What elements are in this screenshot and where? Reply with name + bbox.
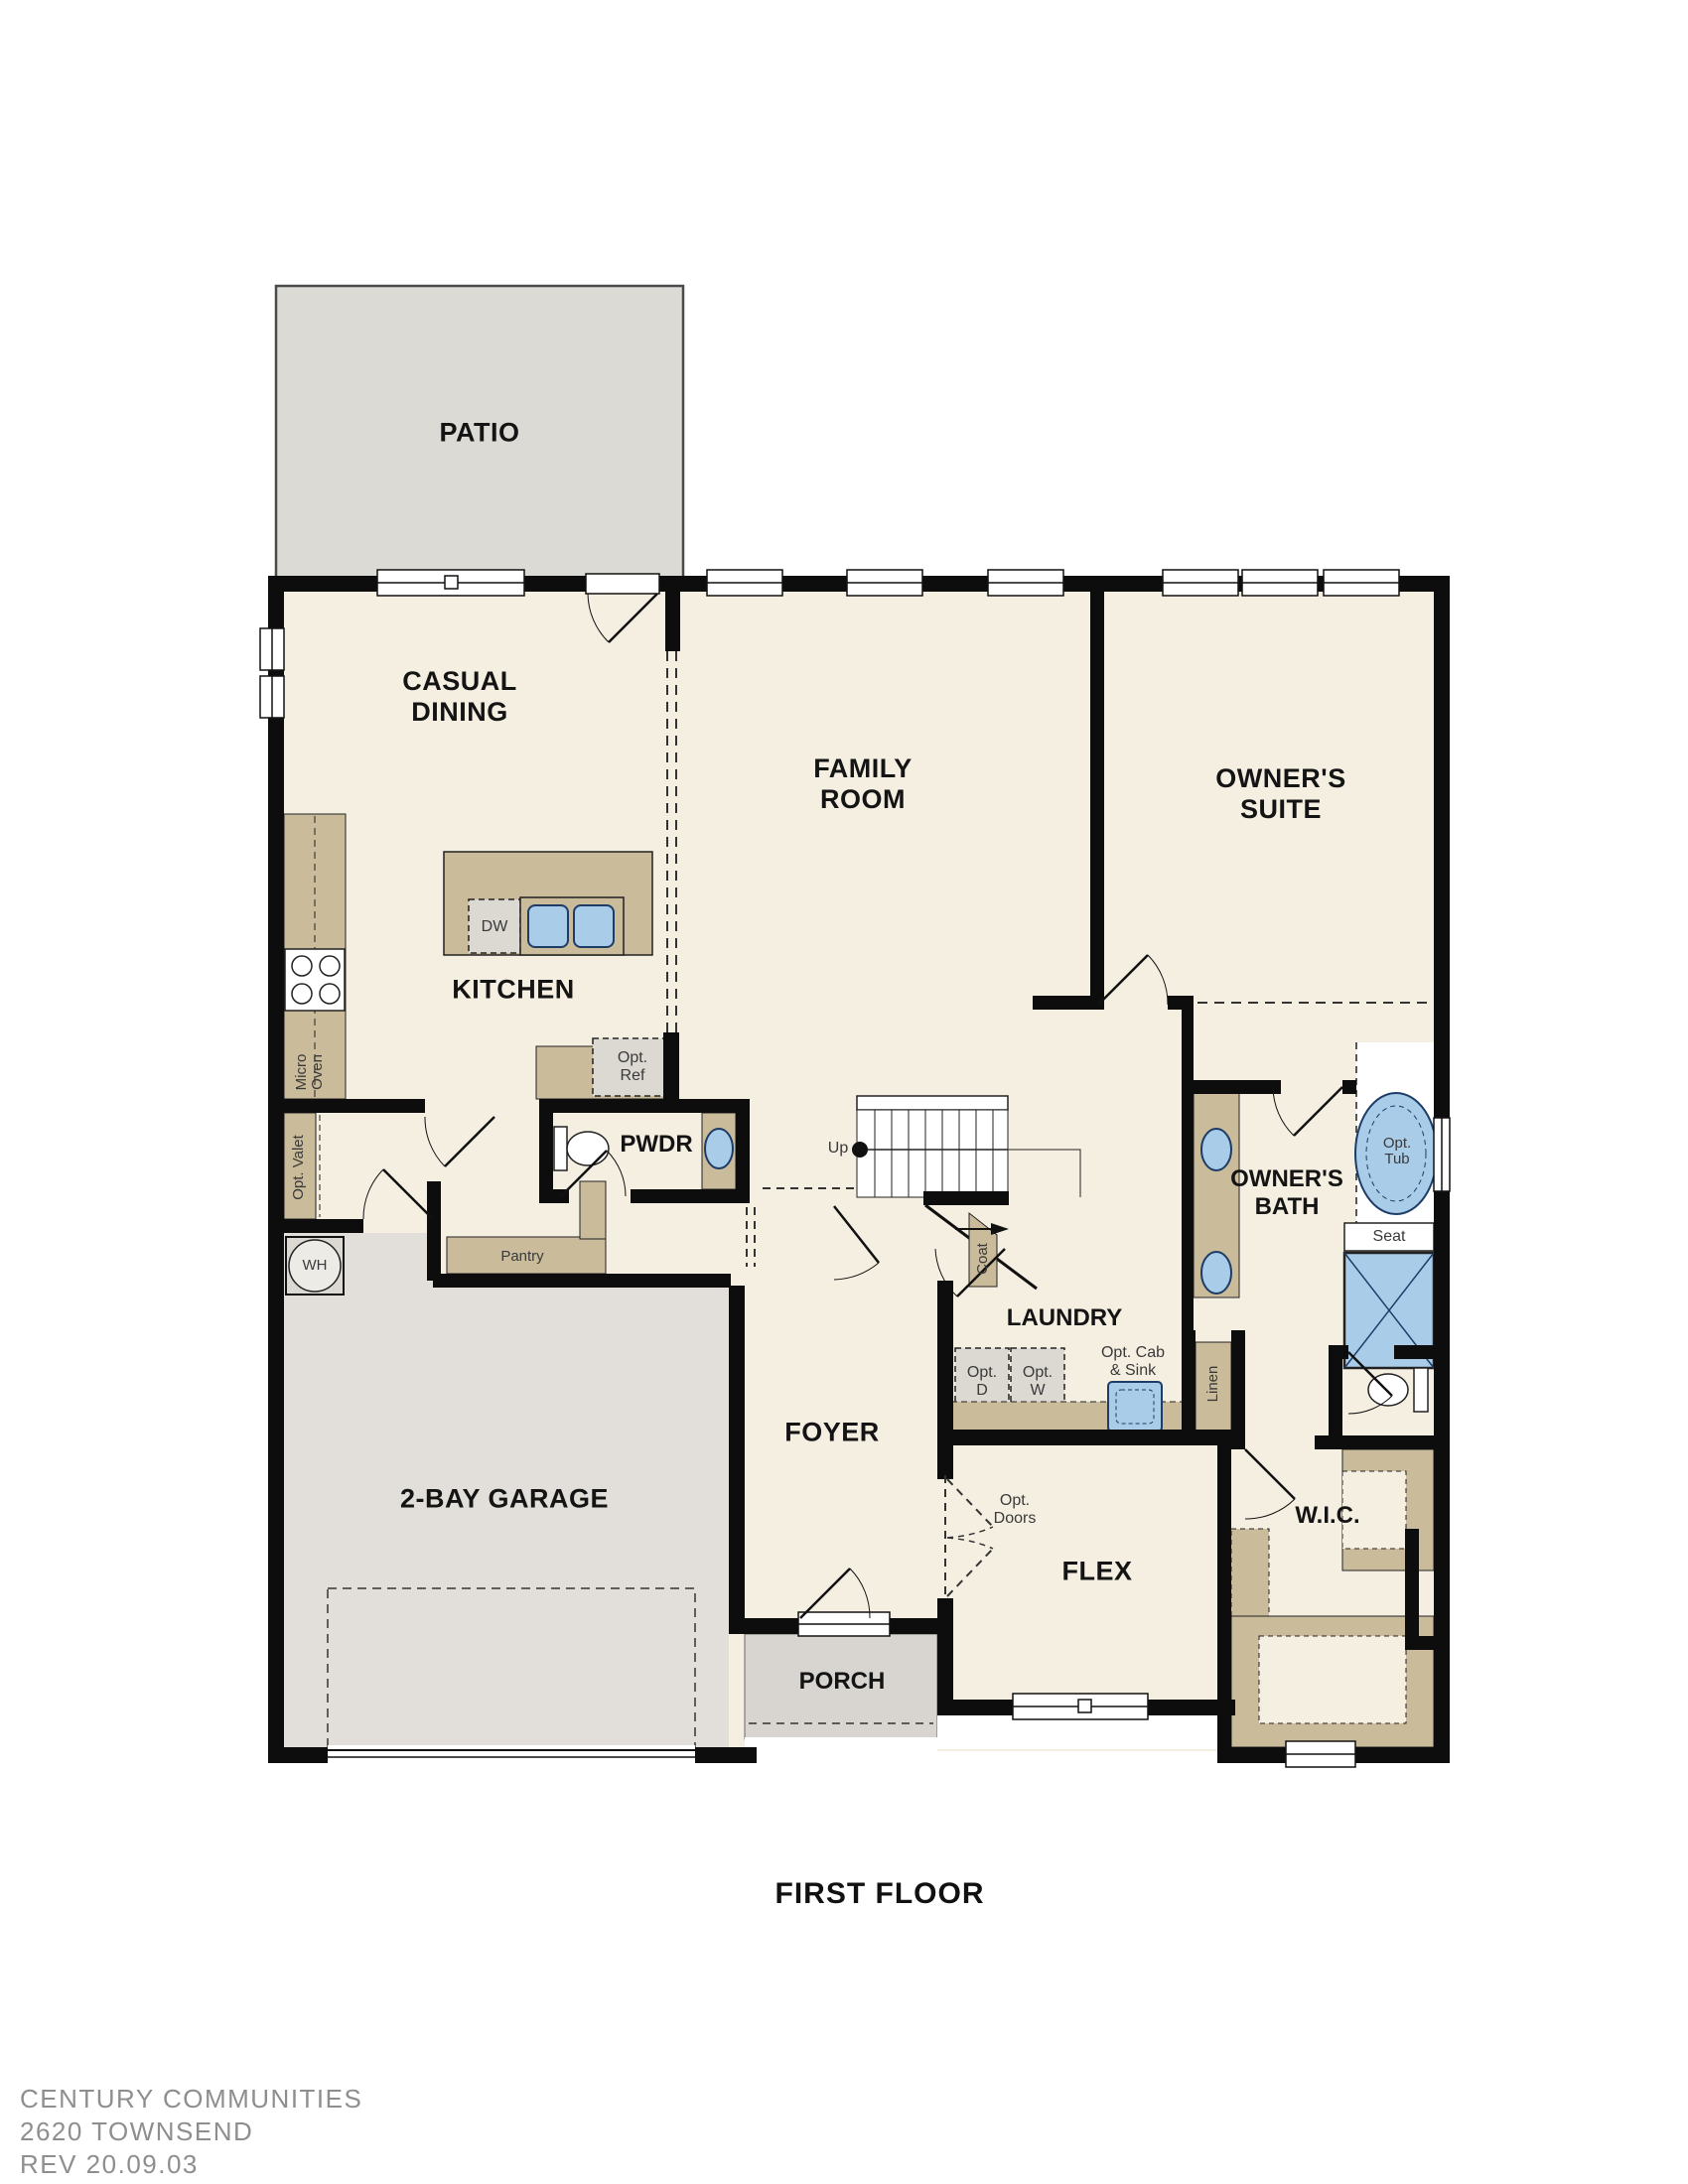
- footer-revision: REV 20.09.03: [20, 2148, 362, 2181]
- flex-label: FLEX: [1061, 1557, 1132, 1587]
- footer-plan: 2620 TOWNSEND: [20, 2116, 362, 2148]
- up-marker: [852, 1142, 868, 1158]
- water-heater-label: WH: [303, 1258, 328, 1274]
- sink-basin-left: [528, 905, 568, 947]
- bath-sink-1: [1201, 1129, 1231, 1170]
- opt-doors-label: Opt. Doors: [994, 1492, 1037, 1528]
- pwdr-toilet-tank: [554, 1127, 567, 1170]
- seat-label: Seat: [1373, 1228, 1406, 1246]
- dishwasher-label: DW: [482, 918, 508, 936]
- pantry-shelf-right: [580, 1181, 606, 1239]
- garage-label: 2-BAY GARAGE: [400, 1484, 609, 1515]
- micro-label: Micro: [294, 1054, 310, 1091]
- opt-cab-sink-label: Opt. Cab & Sink: [1101, 1344, 1165, 1380]
- family-room-line2: ROOM: [813, 784, 913, 815]
- family-room-line1: FAMILY: [813, 753, 913, 784]
- opt-valet-label: Opt. Valet: [291, 1135, 307, 1200]
- opt-doors-line2: Doors: [994, 1510, 1037, 1528]
- up-label: Up: [828, 1140, 848, 1158]
- floor-title: FIRST FLOOR: [775, 1877, 985, 1911]
- owners-suite-line2: SUITE: [1215, 794, 1345, 825]
- floorplan-page: PATIO CASUAL DINING FAMILY ROOM OWNER'S …: [0, 0, 1688, 2184]
- linen-label: Linen: [1205, 1366, 1221, 1403]
- pwdr-label: PWDR: [620, 1131, 692, 1159]
- casual-dining-line1: CASUAL: [402, 666, 517, 697]
- casual-dining-label: CASUAL DINING: [402, 666, 517, 728]
- wc-toilet-tank: [1414, 1368, 1428, 1412]
- opt-doors-line1: Opt.: [994, 1492, 1037, 1510]
- opt-washer-line1: Opt.: [1023, 1364, 1053, 1382]
- owners-suite-line1: OWNER'S: [1215, 763, 1345, 794]
- casual-dining-line2: DINING: [402, 697, 517, 728]
- footer-company: CENTURY COMMUNITIES: [20, 2083, 362, 2116]
- opt-dryer-line2: D: [967, 1382, 997, 1400]
- owners-suite-label: OWNER'S SUITE: [1215, 763, 1345, 825]
- opt-ref-label: Opt. Ref: [618, 1049, 647, 1085]
- oven-label: Oven: [310, 1054, 326, 1091]
- opt-dryer-line1: Opt.: [967, 1364, 997, 1382]
- sink-basin-right: [574, 905, 614, 947]
- wic-label: W.I.C.: [1295, 1502, 1359, 1530]
- family-room-label: FAMILY ROOM: [813, 753, 913, 815]
- pwdr-sink: [705, 1129, 733, 1168]
- owners-bath-label: OWNER'S BATH: [1230, 1165, 1343, 1221]
- laundry-label: LAUNDRY: [1007, 1304, 1122, 1332]
- pantry-label: Pantry: [500, 1249, 543, 1265]
- kitchen-label: KITCHEN: [452, 975, 575, 1006]
- coat-label: Coat: [975, 1243, 991, 1275]
- bath-sink-2: [1201, 1252, 1231, 1294]
- plan-footer: CENTURY COMMUNITIES 2620 TOWNSEND REV 20…: [20, 2083, 362, 2181]
- opt-washer-label: Opt. W: [1023, 1364, 1053, 1400]
- opt-tub-line2: Tub: [1383, 1152, 1411, 1167]
- opt-ref-line2: Ref: [618, 1067, 647, 1085]
- opt-tub-line1: Opt.: [1383, 1136, 1411, 1152]
- micro-oven-label: Micro Oven: [294, 1054, 326, 1091]
- opt-cab-line2: & Sink: [1101, 1362, 1165, 1380]
- opt-cab-line1: Opt. Cab: [1101, 1344, 1165, 1362]
- pwdr-toilet-bowl: [567, 1132, 609, 1165]
- opt-tub-label: Opt. Tub: [1383, 1136, 1411, 1167]
- opt-ref-line1: Opt.: [618, 1049, 647, 1067]
- porch-label: PORCH: [799, 1668, 886, 1696]
- opt-dryer-label: Opt. D: [967, 1364, 997, 1400]
- owners-bath-line1: OWNER'S: [1230, 1165, 1343, 1193]
- opt-washer-line2: W: [1023, 1382, 1053, 1400]
- floorplan-drawing: [0, 0, 1688, 2184]
- foyer-label: FOYER: [784, 1418, 880, 1448]
- patio-label: PATIO: [440, 418, 520, 449]
- owners-bath-line2: BATH: [1230, 1193, 1343, 1221]
